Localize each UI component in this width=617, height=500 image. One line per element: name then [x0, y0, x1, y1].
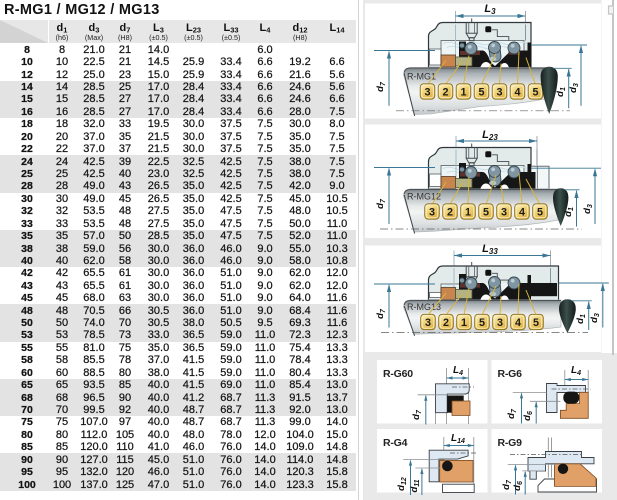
svg-text:1: 1	[460, 87, 466, 99]
svg-text:5: 5	[533, 317, 539, 329]
svg-text:R-G60: R-G60	[383, 368, 413, 380]
svg-text:4: 4	[514, 87, 520, 99]
svg-text:3: 3	[497, 317, 503, 329]
svg-text:1: 1	[465, 207, 471, 219]
svg-text:5: 5	[483, 207, 489, 219]
svg-text:5: 5	[479, 317, 485, 329]
svg-text:4: 4	[515, 317, 521, 329]
svg-text:5: 5	[537, 207, 543, 219]
svg-text:1: 1	[461, 317, 467, 329]
svg-text:R-G6: R-G6	[498, 368, 523, 380]
svg-text:2: 2	[442, 87, 448, 99]
svg-text:3: 3	[424, 87, 430, 99]
svg-text:5: 5	[478, 87, 484, 99]
svg-text:4: 4	[519, 207, 525, 219]
svg-text:R-G4: R-G4	[383, 437, 408, 449]
svg-text:R-MG12: R-MG12	[407, 192, 441, 202]
svg-text:R-G9: R-G9	[498, 437, 523, 449]
svg-text:3: 3	[425, 317, 431, 329]
svg-text:R-MG1: R-MG1	[407, 72, 436, 82]
svg-text:3: 3	[429, 207, 435, 219]
svg-text:R-MG13: R-MG13	[407, 302, 441, 312]
svg-text:5: 5	[532, 87, 538, 99]
svg-text:3: 3	[501, 207, 507, 219]
svg-text:2: 2	[447, 207, 453, 219]
svg-text:2: 2	[443, 317, 449, 329]
svg-text:3: 3	[496, 87, 502, 99]
